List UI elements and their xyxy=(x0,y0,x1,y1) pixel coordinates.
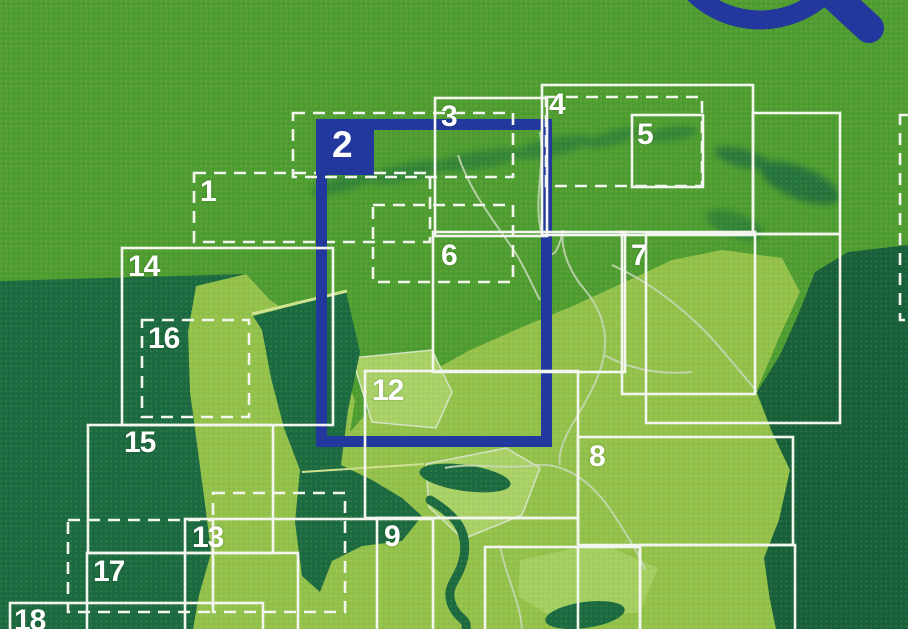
sheet-2-highlight-tab xyxy=(319,119,374,175)
netherlands-map-art xyxy=(0,0,908,629)
map-index-cover: 12345678912131415161718 xyxy=(0,0,908,629)
halftone-texture xyxy=(0,0,908,629)
